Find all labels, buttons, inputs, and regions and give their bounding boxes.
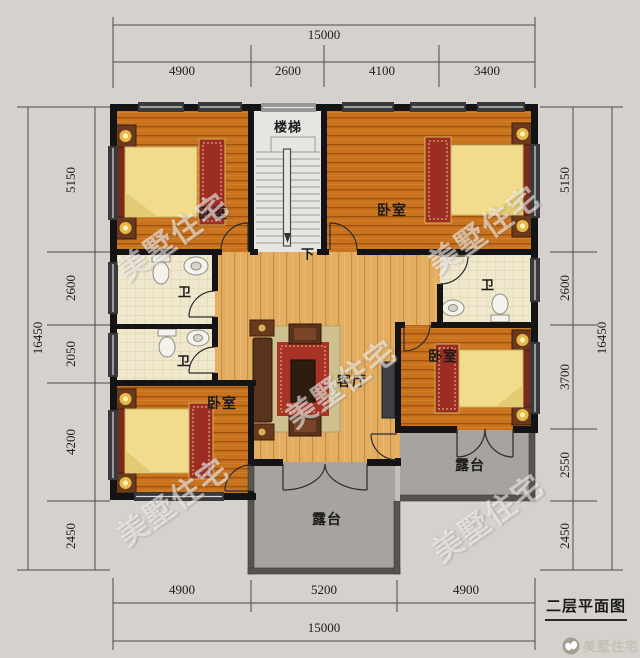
dim-right-total: 16450 [594, 322, 610, 355]
room-label-bathroom-1: 卫 [178, 282, 192, 301]
room-label-bathroom-2: 卫 [177, 351, 191, 370]
room-label-terrace-bottom: 露台 [312, 509, 342, 529]
room-label-bedroom-right: 卧室 [428, 346, 458, 366]
dim-left-seg-1: 5150 [63, 167, 79, 193]
dim-right-seg-2: 2600 [557, 275, 573, 301]
dim-top-seg-2: 2600 [275, 63, 301, 79]
room-label-living-room: 客厅 [337, 371, 367, 391]
dim-top-total: 15000 [308, 27, 341, 43]
brand-name: 美墅住宅 [583, 636, 639, 655]
stairs-rail [284, 149, 291, 246]
floor-plan-page: 15000 4900 2600 4100 3400 4900 5200 4900… [0, 0, 640, 658]
dim-right-seg-1: 5150 [557, 167, 573, 193]
brand-icon [562, 637, 580, 655]
dim-left-total: 16450 [30, 322, 46, 355]
tv [382, 362, 395, 418]
dim-left-seg-2: 2600 [63, 275, 79, 301]
dim-top-seg-4: 3400 [474, 63, 500, 79]
dim-right-seg-4: 2550 [557, 452, 573, 478]
dim-top-seg-1: 4900 [169, 63, 195, 79]
dim-bottom-seg-1: 4900 [169, 582, 195, 598]
room-label-bedroom-bottom-left: 卧室 [207, 393, 237, 413]
room-label-stairs-down: 下 [301, 244, 315, 263]
floor-plan-drawing [0, 0, 640, 658]
dim-bottom-seg-2: 5200 [311, 582, 337, 598]
room-label-stairs: 楼梯 [274, 117, 302, 136]
dim-right-seg-3: 3700 [557, 364, 573, 390]
dim-bottom-total: 15000 [308, 620, 341, 636]
dim-bottom-seg-3: 4900 [453, 582, 479, 598]
room-label-bedroom-top-right: 卧室 [377, 200, 407, 220]
dim-left-seg-3: 2050 [63, 341, 79, 367]
plan-title: 二层平面图 [545, 595, 627, 621]
room-label-bedroom-top-left: 卧室 [198, 203, 228, 223]
brand-logo: 美墅住宅 [562, 636, 639, 655]
dim-left-seg-4: 4200 [63, 429, 79, 455]
dim-top-seg-3: 4100 [369, 63, 395, 79]
dim-right-seg-5: 2450 [557, 523, 573, 549]
room-label-terrace-right: 露台 [455, 455, 485, 475]
terrace-divider [395, 464, 400, 501]
sofa-set [250, 320, 340, 440]
dim-left-seg-5: 2450 [63, 523, 79, 549]
room-label-bathroom-3: 卫 [481, 275, 495, 294]
